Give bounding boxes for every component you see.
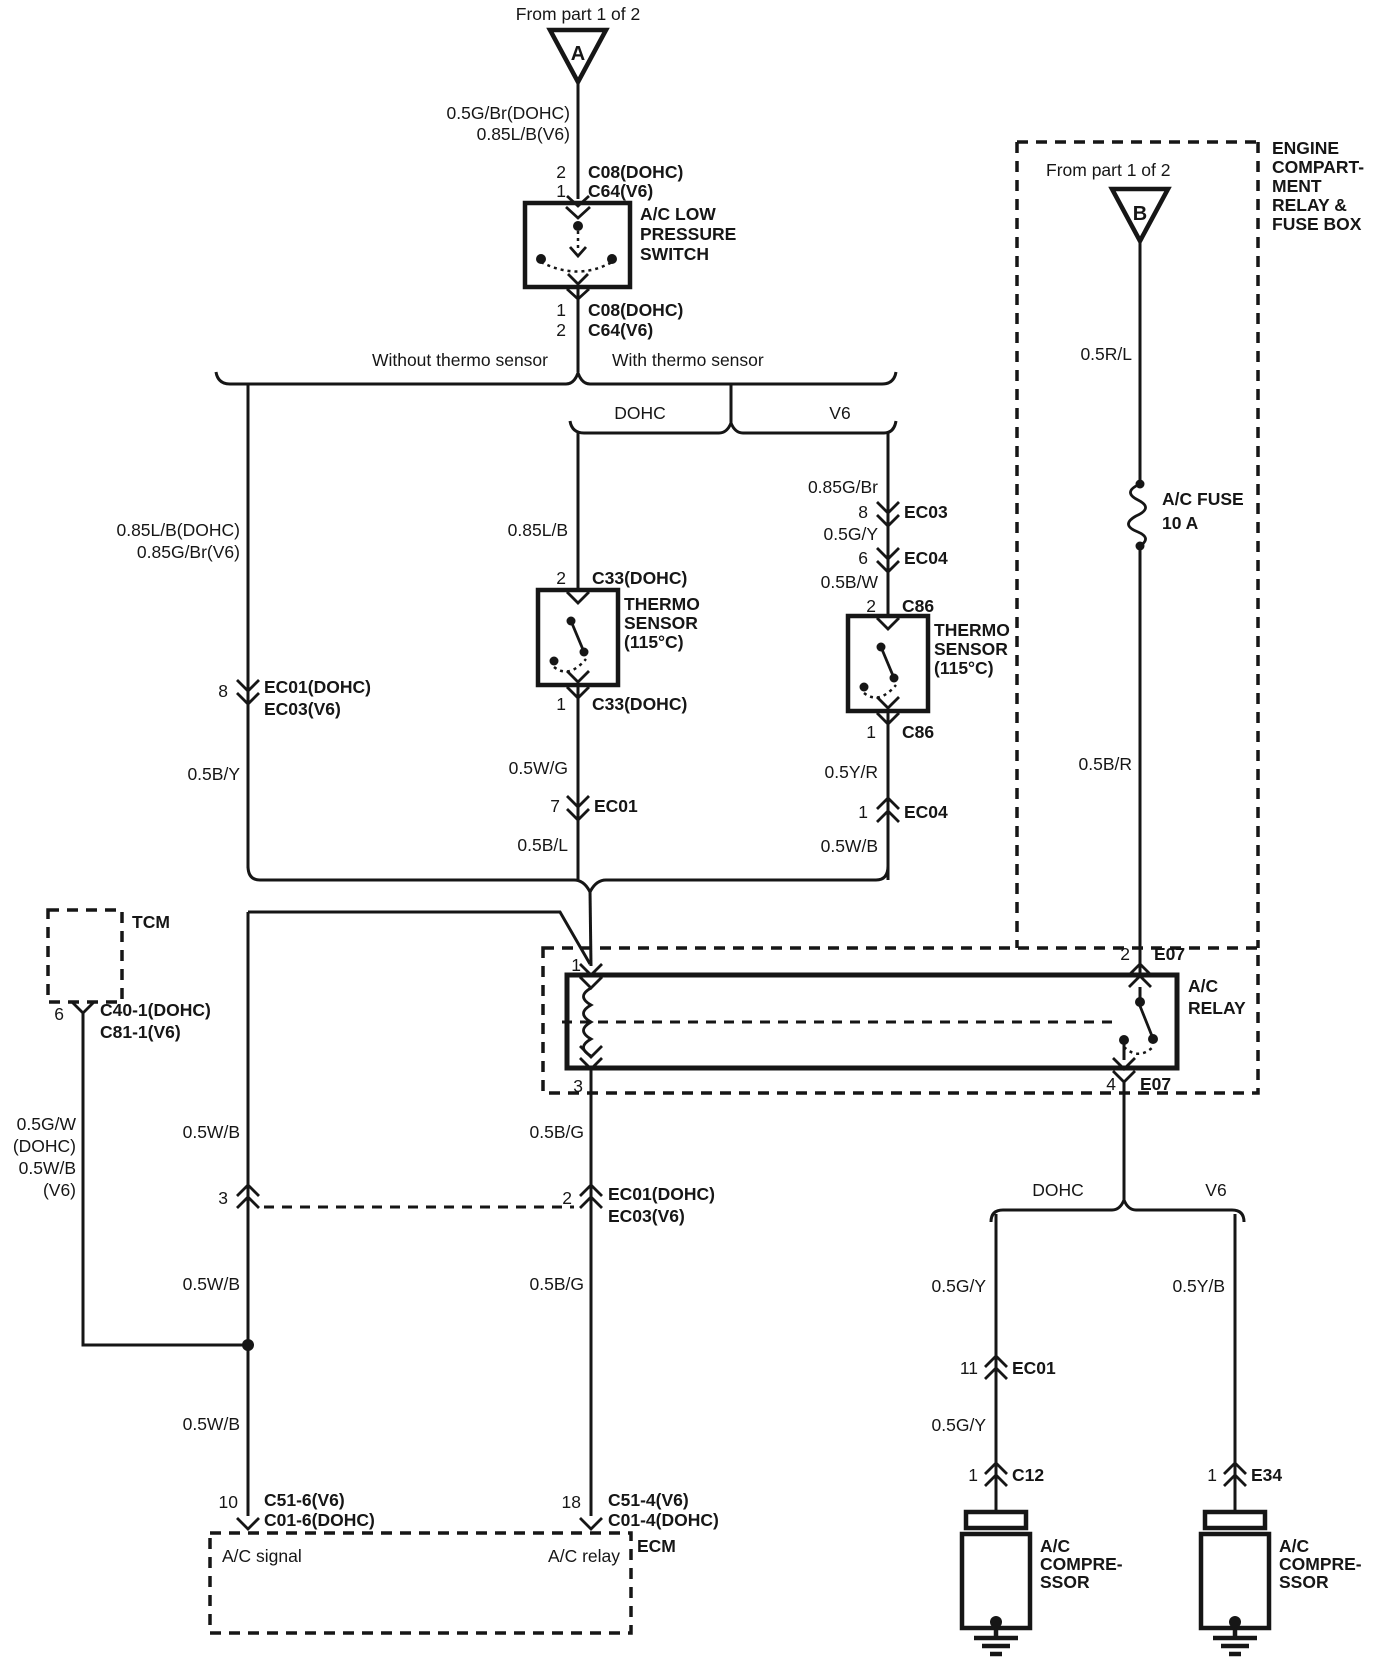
wire-label: 0.5G/Y xyxy=(824,524,879,544)
pin-number: 1 xyxy=(968,1465,978,1485)
component-label: SENSOR xyxy=(624,613,698,633)
compressor-box xyxy=(1201,1534,1269,1628)
component-label: A/C xyxy=(1188,976,1219,996)
wire-label: 0.5B/G xyxy=(530,1274,584,1294)
connector-name: C64(V6) xyxy=(588,320,653,340)
wire-label: 0.5W/B xyxy=(19,1158,76,1178)
branch-label-dohc: DOHC xyxy=(1032,1180,1084,1200)
brace-compressor-split xyxy=(991,1200,1244,1222)
ecm-pin-function: A/C relay xyxy=(548,1546,620,1566)
pin-number: 11 xyxy=(960,1358,978,1378)
component-label: (115°C) xyxy=(934,658,994,678)
wire-label: 0.5B/Y xyxy=(187,764,240,784)
connector-name: EC01 xyxy=(594,796,638,816)
wire-label: 0.85G/Br(V6) xyxy=(137,542,240,562)
dohc-thermo-sensor-branch: 0.85L/B 2 C33(DOHC) THERMO SENSOR (115°C… xyxy=(508,433,700,880)
connector-name: EC01 xyxy=(1012,1358,1056,1378)
wire-label: 0.5B/R xyxy=(1079,754,1133,774)
connector-name: C01-6(DOHC) xyxy=(264,1510,375,1530)
ecm: ECM A/C signal A/C relay xyxy=(210,1533,676,1633)
compressor-terminal-cap xyxy=(966,1512,1026,1528)
component-label: PRESSURE xyxy=(640,224,736,244)
connector-name: E07 xyxy=(1140,1074,1171,1094)
pin-number: 3 xyxy=(573,1076,583,1096)
connector-name: C08(DOHC) xyxy=(588,162,683,182)
contact-dot xyxy=(1148,1034,1158,1044)
component-label: TCM xyxy=(132,912,170,932)
marker-b: B xyxy=(1133,203,1147,225)
box-label: FUSE BOX xyxy=(1272,214,1362,234)
ground-icon xyxy=(1213,1628,1257,1654)
branch-label-dohc: DOHC xyxy=(614,403,666,423)
merge-brace xyxy=(248,866,888,966)
wire-label: 0.5B/G xyxy=(530,1122,584,1142)
connector-name: EC03(V6) xyxy=(608,1206,685,1226)
branch-label-v6: V6 xyxy=(829,403,850,423)
connector-name: EC04 xyxy=(904,548,948,568)
wire-label: 0.5W/B xyxy=(821,836,878,856)
wire-label: 0.5G/Y xyxy=(932,1276,987,1296)
wire-label: 0.5B/W xyxy=(821,572,879,592)
connector-name: C64(V6) xyxy=(588,181,653,201)
arrow-icon xyxy=(567,671,589,682)
switch-arm xyxy=(571,621,584,652)
pin-number: 8 xyxy=(858,502,868,522)
component-label: A/C xyxy=(1040,1536,1071,1556)
component-label: COMPRE- xyxy=(1279,1554,1362,1574)
pin-number: 1 xyxy=(556,694,566,714)
pin-number: 2 xyxy=(866,596,876,616)
pin-number: 2 xyxy=(556,320,566,340)
wire-to-relay-pin1 xyxy=(590,890,591,966)
contact-dot xyxy=(550,657,559,666)
wire-label: (DOHC) xyxy=(13,1136,76,1156)
entry-chevron-icon xyxy=(877,618,899,629)
contact-dot xyxy=(1135,997,1145,1007)
engine-compartment-fuse-box: ENGINE COMPART- MENT RELAY & FUSE BOX Fr… xyxy=(1017,138,1364,975)
pin-number: 1 xyxy=(556,300,566,320)
switch-throw-arc xyxy=(541,262,612,272)
wire-label: 0.5R/L xyxy=(1080,344,1132,364)
connector-chevron-icon xyxy=(72,1002,94,1013)
wire-label: 0.5W/B xyxy=(183,1122,240,1142)
wire-label: 0.5W/B xyxy=(183,1414,240,1434)
connector-name: C81-1(V6) xyxy=(100,1022,181,1042)
contact-dot xyxy=(860,683,869,692)
branch-label-without: Without thermo sensor xyxy=(372,350,548,370)
pin-number: 8 xyxy=(218,681,228,701)
box-label: MENT xyxy=(1272,176,1322,196)
wire-label: 0.85L/B(V6) xyxy=(477,124,570,144)
pin-number: 2 xyxy=(562,1188,572,1208)
wire-label: 0.5G/Br(DOHC) xyxy=(447,103,570,123)
wire-label: 0.5W/G xyxy=(509,758,568,778)
pin-number: 6 xyxy=(858,548,868,568)
pin-number: 4 xyxy=(1106,1074,1116,1094)
pin-number: 6 xyxy=(54,1004,64,1024)
wire-label: 0.85L/B(DOHC) xyxy=(116,520,240,540)
pin-number: 1 xyxy=(556,181,566,201)
connector-name: EC01(DOHC) xyxy=(264,677,371,697)
connector-name: E07 xyxy=(1154,944,1185,964)
arrow-icon xyxy=(877,697,899,708)
from-part-label-a: From part 1 of 2 xyxy=(516,4,641,24)
marker-a: A xyxy=(571,43,585,65)
pin-number: 18 xyxy=(562,1492,581,1512)
compressor-terminal-cap xyxy=(1205,1512,1265,1528)
pin-number: 10 xyxy=(219,1492,239,1512)
entry-chevron-icon xyxy=(567,592,589,603)
ac-signal-path: 0.5W/B 3 0.5W/B 0.5W/B 10 C51-6(V6) C01-… xyxy=(183,912,574,1530)
connector-name: EC03(V6) xyxy=(264,699,341,719)
component-label: COMPRE- xyxy=(1040,1554,1123,1574)
compressor-box xyxy=(962,1534,1030,1628)
no-thermo-sensor-branch: 0.85L/B(DOHC) 0.85G/Br(V6) 8 EC01(DOHC) … xyxy=(116,384,370,868)
component-label: SSOR xyxy=(1040,1572,1090,1592)
box-label: RELAY & xyxy=(1272,195,1347,215)
connector-chevron-icon xyxy=(237,1518,259,1529)
contact-dot xyxy=(580,648,589,657)
component-label: A/C LOW xyxy=(640,204,716,224)
box-label: COMPART- xyxy=(1272,157,1364,177)
wire-label: 0.5G/W xyxy=(17,1114,77,1134)
connector-name: C51-4(V6) xyxy=(608,1490,689,1510)
component-label: RELAY xyxy=(1188,998,1246,1018)
component-label: THERMO xyxy=(624,594,700,614)
thermo-option-branch: Without thermo sensor With thermo sensor… xyxy=(216,350,896,433)
component-label: SENSOR xyxy=(934,639,1008,659)
pin-number: 2 xyxy=(556,568,566,588)
contact-dot xyxy=(573,221,583,231)
fuse-label: 10 A xyxy=(1162,513,1199,533)
connector-name: E34 xyxy=(1251,1465,1282,1485)
pin-number: 1 xyxy=(1207,1465,1217,1485)
connector-name: C40-1(DOHC) xyxy=(100,1000,211,1020)
connector-name: C33(DOHC) xyxy=(592,694,687,714)
brace-option-split xyxy=(216,372,896,384)
connector-chevron-icon xyxy=(580,1518,602,1529)
component-label: A/C xyxy=(1279,1536,1310,1556)
connector-name: EC03 xyxy=(904,502,948,522)
component-label: THERMO xyxy=(934,620,1010,640)
wire-label: 0.85G/Br xyxy=(808,477,878,497)
arrow-icon xyxy=(570,247,586,256)
wire-tcm xyxy=(83,1013,244,1345)
connector-name: EC04 xyxy=(904,802,948,822)
wire-label: 0.5G/Y xyxy=(932,1415,987,1435)
connector-name: C86 xyxy=(902,722,934,742)
fuse-label: A/C FUSE xyxy=(1162,489,1244,509)
wire-label: (V6) xyxy=(43,1180,76,1200)
ground-dot xyxy=(1229,1616,1241,1628)
component-label: SWITCH xyxy=(640,244,709,264)
pin-number: 1 xyxy=(858,802,868,822)
wire-label: 0.5Y/B xyxy=(1172,1276,1225,1296)
branch-label-v6: V6 xyxy=(1205,1180,1226,1200)
connector-name: C01-4(DOHC) xyxy=(608,1510,719,1530)
switch-throw-arc xyxy=(554,659,586,672)
dohc-compressor-branch: 0.5G/Y 11 EC01 0.5G/Y 1 C12 A/C COMPRE- … xyxy=(932,1214,1123,1654)
ac-low-pressure-switch: 2 C08(DOHC) 1 C64(V6) A/C LOW PRESSURE S… xyxy=(525,162,736,372)
pin-number: 1 xyxy=(866,722,876,742)
ecm-pin-function: A/C signal xyxy=(222,1546,302,1566)
junction-dot xyxy=(242,1339,254,1351)
pin-number: 3 xyxy=(218,1188,228,1208)
ac-relay-control-path: 0.5B/G 2 EC01(DOHC) EC03(V6) 0.5B/G 18 C… xyxy=(530,1122,719,1530)
connector-name: EC01(DOHC) xyxy=(608,1184,715,1204)
tcm-dashed-box xyxy=(48,910,122,1002)
contact-dot xyxy=(1119,1035,1129,1045)
v6-compressor-branch: 0.5Y/B 1 E34 A/C COMPRE- SSOR xyxy=(1172,1214,1361,1654)
switch-arm xyxy=(881,647,894,678)
wire-label: 0.5B/L xyxy=(517,835,568,855)
component-label: ECM xyxy=(637,1536,676,1556)
pin-number: 2 xyxy=(1120,944,1130,964)
arrow-icon xyxy=(568,274,588,284)
connector-name: C51-6(V6) xyxy=(264,1490,345,1510)
brace-merge xyxy=(248,866,888,892)
contact-dot xyxy=(890,674,899,683)
box-label: ENGINE xyxy=(1272,138,1339,158)
component-label: SSOR xyxy=(1279,1572,1329,1592)
relay-dashed-outline xyxy=(543,948,1258,1093)
connector-name: C12 xyxy=(1012,1465,1044,1485)
component-label: (115°C) xyxy=(624,632,684,652)
connector-name: C08(DOHC) xyxy=(588,300,683,320)
wire-signal-takeoff xyxy=(248,912,590,964)
branch-label-with: With thermo sensor xyxy=(612,350,764,370)
pin-number: 2 xyxy=(556,162,566,182)
wire-label: 0.5Y/R xyxy=(825,762,879,782)
ground-dot xyxy=(990,1616,1002,1628)
from-part-label-b: From part 1 of 2 xyxy=(1046,160,1171,180)
compressor-split: DOHC V6 xyxy=(991,1180,1244,1222)
wiring-diagram-sheet: From part 1 of 2 A 0.5G/Br(DOHC) 0.85L/B… xyxy=(0,0,1376,1658)
switch-entry-icon xyxy=(566,207,590,218)
ac-relay: A/C RELAY 1 3 2 E07 4 E07 xyxy=(543,944,1258,1516)
contact-throw-arc xyxy=(1124,1046,1154,1054)
v6-thermo-sensor-branch: 0.85G/Br 8 EC03 0.5G/Y 6 EC04 0.5B/W 2 C… xyxy=(808,433,1010,880)
fuse-element-icon xyxy=(1128,484,1145,546)
wire-label: 0.5W/B xyxy=(183,1274,240,1294)
ac-wiring-diagram: From part 1 of 2 A 0.5G/Br(DOHC) 0.85L/B… xyxy=(0,0,1376,1658)
wire-label: 0.85L/B xyxy=(508,520,568,540)
connector-name: C86 xyxy=(902,596,934,616)
connector-name: C33(DOHC) xyxy=(592,568,687,588)
ground-icon xyxy=(974,1628,1018,1654)
contact-arm xyxy=(1140,1006,1152,1036)
pin-number: 7 xyxy=(550,796,560,816)
switch-throw-arc xyxy=(864,685,896,698)
